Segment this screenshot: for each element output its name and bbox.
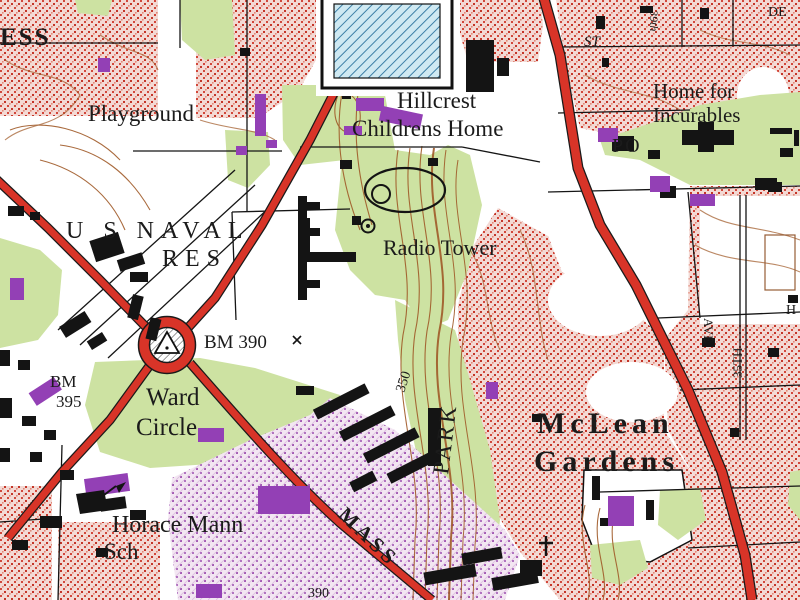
label-bm-left-line1: BM — [50, 372, 76, 391]
label-home-line2: Incurables — [653, 103, 740, 127]
label-bm390: BM 390 — [204, 332, 267, 353]
topo-map-screenshot: ESS Playground Hillcrest Childrens Home … — [0, 0, 800, 600]
label-ward-line1: Ward — [146, 384, 200, 411]
label-bm-left-line2: 395 — [56, 392, 82, 411]
label-ward-line2: Circle — [136, 414, 197, 441]
label-mclean-line2: Gardens — [534, 445, 679, 478]
ward-circle-monument-icon — [139, 317, 196, 374]
label-st: ST — [584, 34, 602, 50]
label-playground: Playground — [88, 101, 195, 126]
label-home-line1: Home for — [653, 79, 734, 103]
label-po: PO — [612, 135, 642, 157]
label-naval-line2: RES — [162, 246, 227, 272]
label-h-edge: H — [786, 303, 796, 318]
label-mclean-line1: McLean — [537, 407, 674, 440]
label-390-bottom: 390 — [308, 586, 329, 600]
label-hillcrest-line1: Hillcrest — [397, 88, 477, 113]
label-ave: AVE — [701, 318, 716, 343]
label-35th: 35TH — [730, 348, 745, 378]
label-horace-line1: Horace Mann — [112, 512, 243, 538]
label-hillcrest-line2: Childrens Home — [352, 116, 503, 141]
label-ess: ESS — [0, 24, 50, 51]
label-39th-street: 39th — [647, 9, 661, 31]
label-de-partial: DE — [768, 5, 787, 20]
hatched-school-building-icon — [316, 0, 458, 96]
label-horace-line2: Sch — [104, 539, 139, 564]
topo-map-canvas[interactable]: ESS Playground Hillcrest Childrens Home … — [0, 0, 800, 600]
label-naval-line1: U S NAVAL — [66, 218, 249, 244]
label-radio-tower: Radio Tower — [383, 235, 497, 260]
